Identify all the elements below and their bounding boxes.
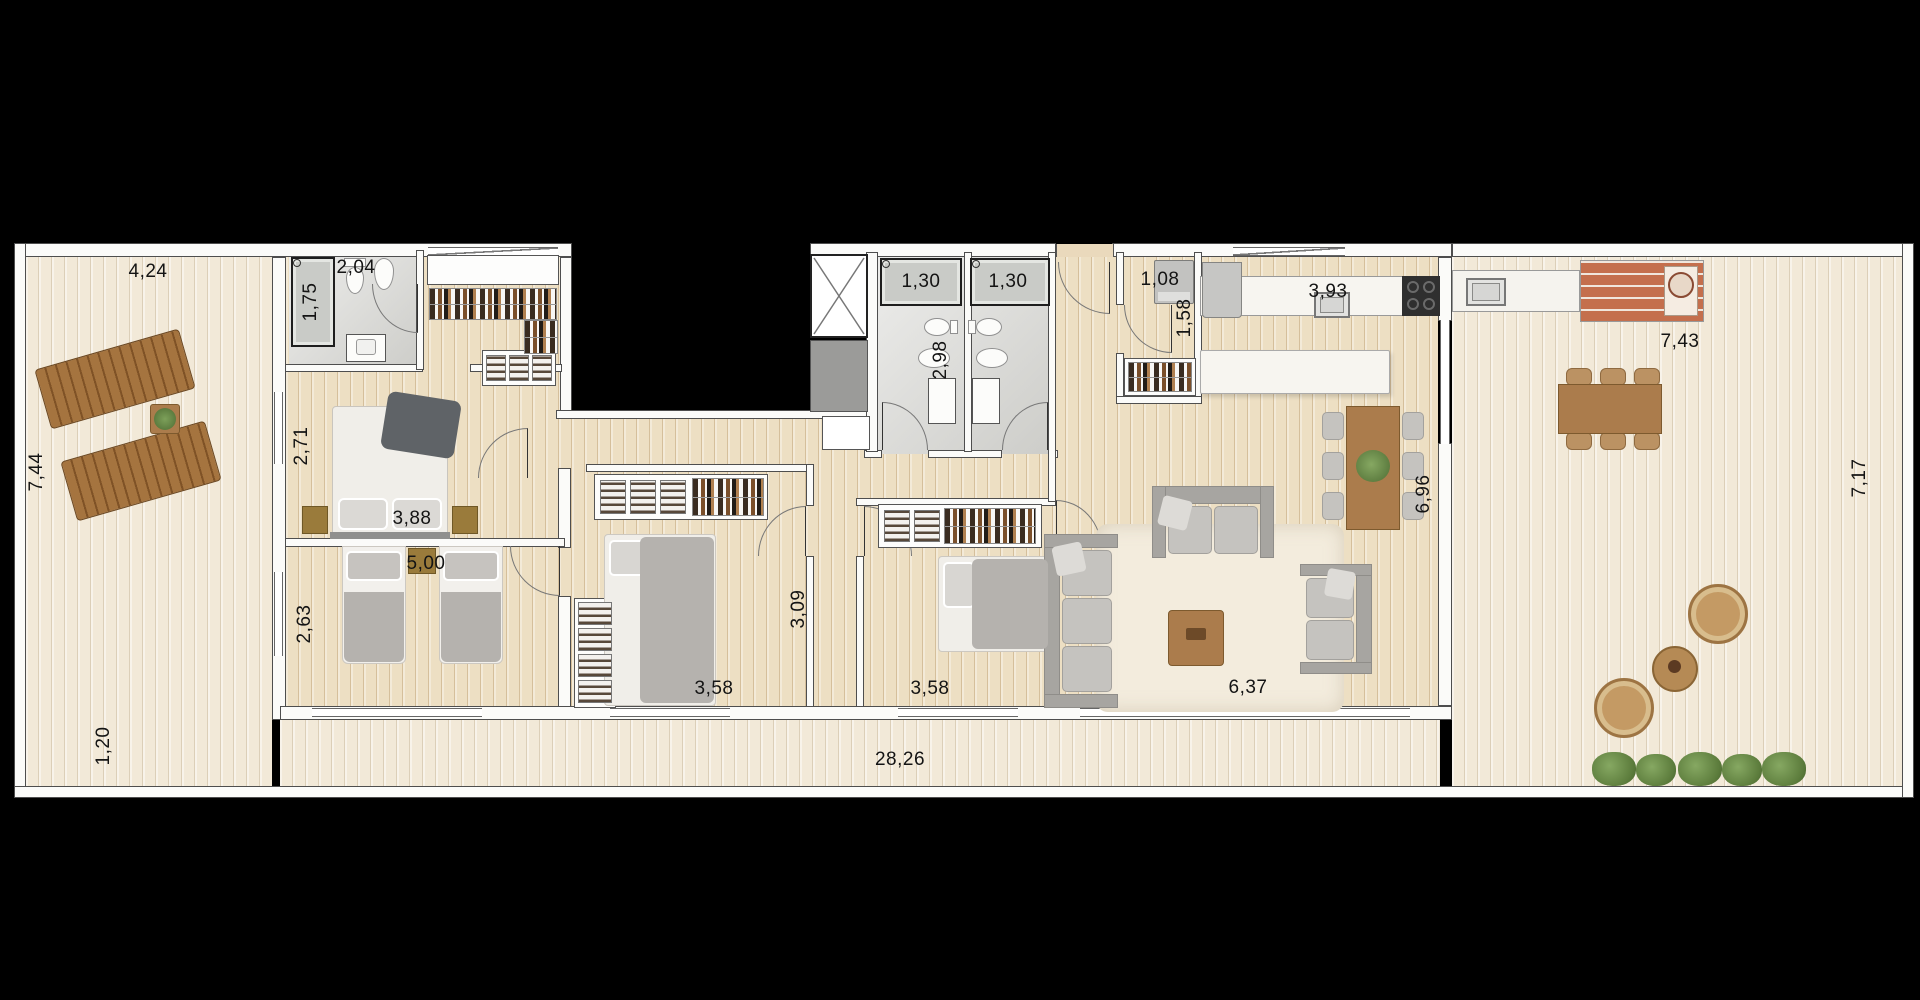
bedrooms-balcony-glass-c xyxy=(898,708,1018,717)
twin-pillow-2 xyxy=(443,551,499,581)
planter-shrub-5 xyxy=(1762,752,1806,786)
dim-bathroom-right-shower: 1,30 xyxy=(989,271,1028,293)
bedroom3-wardrobe-clothes xyxy=(692,478,764,516)
bedrooms-balcony-glass-b xyxy=(610,708,730,717)
dim-terrace-right-bbq: 7,43 xyxy=(1661,331,1700,353)
bedroom3-wardrobe-drawer-2 xyxy=(630,480,656,514)
dim-living-width: 6,37 xyxy=(1229,677,1268,699)
dim-master-width: 3,88 xyxy=(393,508,432,530)
outdoor-sink-basin xyxy=(1472,283,1500,301)
closet-drawer-3 xyxy=(532,355,552,381)
sofa-right-arm-bottom xyxy=(1300,662,1372,674)
dim-balcony-length: 28,26 xyxy=(875,749,925,771)
bedroom3-wardrobe-drawer-1 xyxy=(600,480,626,514)
closet-hanging-clothes xyxy=(429,288,557,320)
dim-terrace-left-width: 4,24 xyxy=(129,261,168,283)
dim-terrace-right-depth: 7,17 xyxy=(1849,459,1871,498)
dining-chair-4 xyxy=(1402,412,1424,440)
sofa-left-arm-bottom xyxy=(1044,694,1118,708)
dining-centerpiece-plant xyxy=(1356,450,1390,482)
service-shaft-grey xyxy=(810,340,868,412)
bathroom-right-toilet xyxy=(976,318,1002,336)
twin-cabinet-drawer-4 xyxy=(578,680,612,703)
planter-shrub-2 xyxy=(1636,754,1676,786)
wall-outer-left xyxy=(14,243,26,798)
entry-wardrobe-clothes xyxy=(1128,362,1192,392)
master-terrace-window xyxy=(274,392,283,464)
dim-bathrooms-depth: 2,98 xyxy=(930,341,952,380)
sofa-top-arm-right xyxy=(1260,486,1274,558)
wall-bedroom3-right-upper xyxy=(806,464,814,506)
wall-top-terrace-right xyxy=(1452,243,1914,257)
duct-shaft-x xyxy=(810,254,868,338)
master-bed-throw xyxy=(380,391,462,460)
planter-shrub-4 xyxy=(1722,754,1762,786)
twin-duvet-2 xyxy=(441,592,501,662)
entry-landing xyxy=(1056,244,1114,257)
closet-shelf xyxy=(427,255,559,285)
twin-pillow-1 xyxy=(346,551,402,581)
bedrooms-balcony-glass-a xyxy=(312,708,482,717)
master-nightstand-left xyxy=(302,506,328,534)
sofa-right-cushion-2 xyxy=(1306,620,1354,660)
dim-laundry-width: 1,08 xyxy=(1141,269,1180,291)
bathroom-left-vanity xyxy=(928,378,956,424)
cooktop-burner-1 xyxy=(1407,281,1419,293)
dim-ensuite-shower: 1,75 xyxy=(300,283,322,322)
bedroom4-wardrobe-drawer-1 xyxy=(884,510,910,542)
planter-shrub-1 xyxy=(1592,752,1636,786)
dining-chair-2 xyxy=(1322,452,1344,480)
twin-cabinet-drawer-2 xyxy=(578,628,612,651)
cooktop-burner-4 xyxy=(1423,298,1435,310)
closet-drawer-2 xyxy=(509,355,529,381)
twin-cabinet-drawer-1 xyxy=(578,602,612,625)
dim-master-depth: 2,71 xyxy=(291,427,313,466)
potted-plant xyxy=(154,408,176,430)
outdoor-chair-4 xyxy=(1566,432,1592,450)
dim-bedroom3-depth: 3,09 xyxy=(788,590,810,629)
wall-laundry-bottom xyxy=(1116,396,1202,404)
outdoor-chair-5 xyxy=(1600,432,1626,450)
sofa-right-back xyxy=(1356,564,1372,674)
ensuite-sink xyxy=(356,339,376,355)
bedroom3-wardrobe-drawer-3 xyxy=(660,480,686,514)
twin-terrace-window xyxy=(274,572,283,656)
outdoor-dining-table xyxy=(1558,384,1662,434)
dim-bedroom4-width: 3,58 xyxy=(911,678,950,700)
bbq-grill-icon xyxy=(1668,272,1694,298)
bathroom-right-vanity xyxy=(972,378,1000,424)
closet-hanging-clothes-2 xyxy=(524,320,558,354)
cooktop-burner-3 xyxy=(1407,298,1419,310)
dim-twin-depth: 2,63 xyxy=(294,605,316,644)
dim-twin-width: 5,00 xyxy=(407,553,446,575)
floor-plan-canvas: 4,24 7,44 1,20 28,26 1,75 2,04 2,71 3,88… xyxy=(0,0,1920,1000)
dim-bedroom3-width: 3,58 xyxy=(695,678,734,700)
sofa-top-cushion-2 xyxy=(1214,506,1258,554)
wall-bedroom4-left xyxy=(856,556,864,712)
wall-core-left xyxy=(560,257,572,412)
bathroom-right-toilet-tank xyxy=(968,320,976,334)
planter-shrub-3 xyxy=(1678,752,1722,786)
bedroom4-duvet xyxy=(972,559,1048,649)
sofa-left-cushion-2 xyxy=(1062,598,1112,644)
sofa-left-cushion-3 xyxy=(1062,646,1112,692)
wall-outer-right xyxy=(1902,243,1914,798)
master-headboard xyxy=(330,532,450,539)
closet-drawer-1 xyxy=(486,355,506,381)
outdoor-chair-6 xyxy=(1634,432,1660,450)
wicker-chair-2 xyxy=(1594,678,1654,738)
wall-outer-bottom xyxy=(14,786,1914,798)
dining-chair-3 xyxy=(1322,492,1344,520)
wall-entry-laundry-lower xyxy=(1116,353,1124,398)
dim-bathroom-left-shower: 1,30 xyxy=(902,271,941,293)
sofa-left-throw-pillow xyxy=(1051,541,1087,577)
sofa-right-throw-pillow xyxy=(1324,568,1356,600)
kitchen-terrace-glass-door xyxy=(1440,320,1450,444)
twin-cabinet-drawer-3 xyxy=(578,654,612,677)
coffee-table-decor xyxy=(1186,628,1206,640)
wall-suite-right-upper xyxy=(558,468,571,548)
bathroom-left-toilet-tank xyxy=(950,320,958,334)
bathroom-right-bidet xyxy=(976,348,1008,368)
master-pillow-1 xyxy=(338,498,388,530)
dim-living-depth: 6,96 xyxy=(1413,475,1435,514)
wall-living-terrace-lower xyxy=(1438,443,1452,706)
wall-entry-laundry-upper xyxy=(1116,252,1124,305)
wall-bedroom3-top xyxy=(586,464,810,472)
dim-kitchen-counter: 3,93 xyxy=(1309,281,1348,303)
master-nightstand-right xyxy=(452,506,478,534)
kitchen-window xyxy=(1233,247,1345,256)
wall-suite-right-lower xyxy=(558,596,571,712)
bedroom4-wardrobe-drawer-2 xyxy=(914,510,940,542)
bathroom-left-toilet xyxy=(924,318,950,336)
dim-laundry-depth: 1,58 xyxy=(1174,299,1196,338)
balcony-strip-floor xyxy=(280,714,1440,788)
twin-duvet-1 xyxy=(344,592,404,662)
dining-chair-1 xyxy=(1322,412,1344,440)
kitchen-island xyxy=(1200,350,1390,394)
wicker-chair-1 xyxy=(1688,584,1748,644)
wall-kitchen-terrace-upper xyxy=(1438,257,1452,321)
hall-niche xyxy=(822,416,870,450)
dim-terrace-left-depth: 7,44 xyxy=(26,453,48,492)
side-table-cup xyxy=(1668,660,1681,673)
cooktop-burner-2 xyxy=(1423,281,1435,293)
bedroom4-pillow xyxy=(943,562,975,608)
refrigerator xyxy=(1202,262,1242,318)
wall-ensuite-bottom xyxy=(285,364,423,372)
dim-ensuite-width: 2,04 xyxy=(337,257,376,279)
wall-bedroom3-right-lower xyxy=(806,556,814,712)
bedroom4-wardrobe-clothes xyxy=(944,508,1036,544)
dim-balcony-depth: 1,20 xyxy=(93,727,115,766)
